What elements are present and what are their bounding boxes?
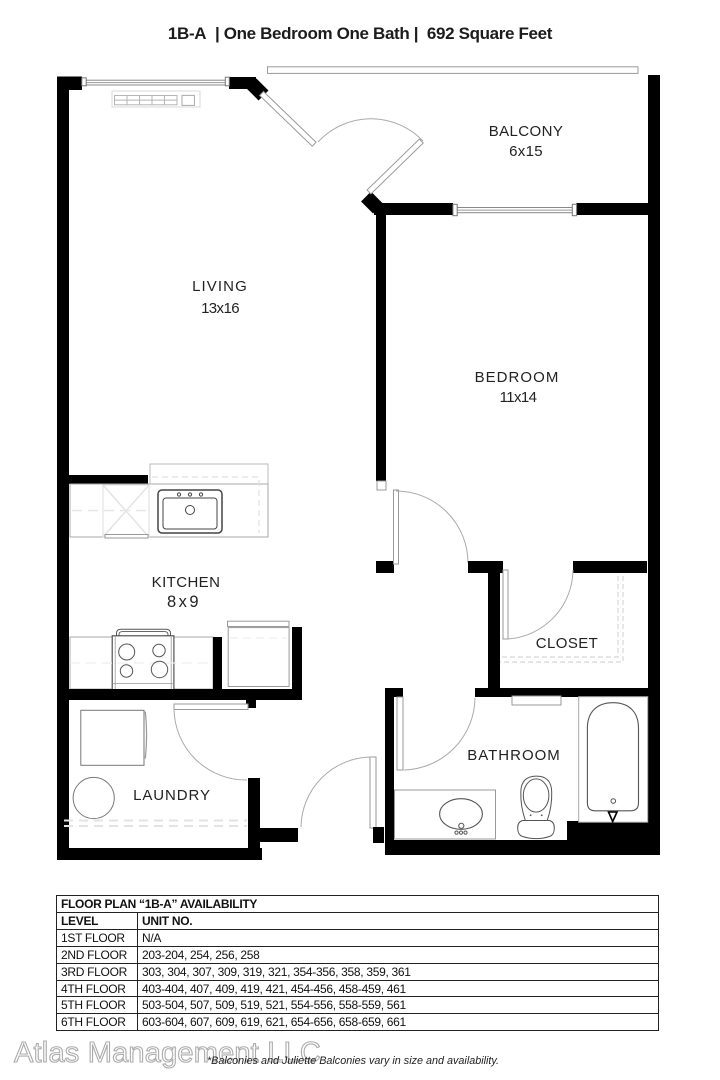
- svg-text:8x9: 8x9: [167, 593, 201, 611]
- svg-text:LAUNDRY: LAUNDRY: [133, 787, 211, 804]
- svg-text:13x16: 13x16: [201, 300, 239, 317]
- svg-text:KITCHEN: KITCHEN: [152, 574, 221, 591]
- svg-text:BEDROOM: BEDROOM: [475, 369, 560, 386]
- svg-text:LIVING: LIVING: [192, 278, 248, 295]
- svg-text:11x14: 11x14: [500, 389, 537, 406]
- svg-text:6x15: 6x15: [509, 143, 543, 160]
- svg-text:BALCONY: BALCONY: [489, 123, 564, 140]
- svg-text:BATHROOM: BATHROOM: [467, 747, 561, 764]
- svg-text:CLOSET: CLOSET: [536, 635, 598, 652]
